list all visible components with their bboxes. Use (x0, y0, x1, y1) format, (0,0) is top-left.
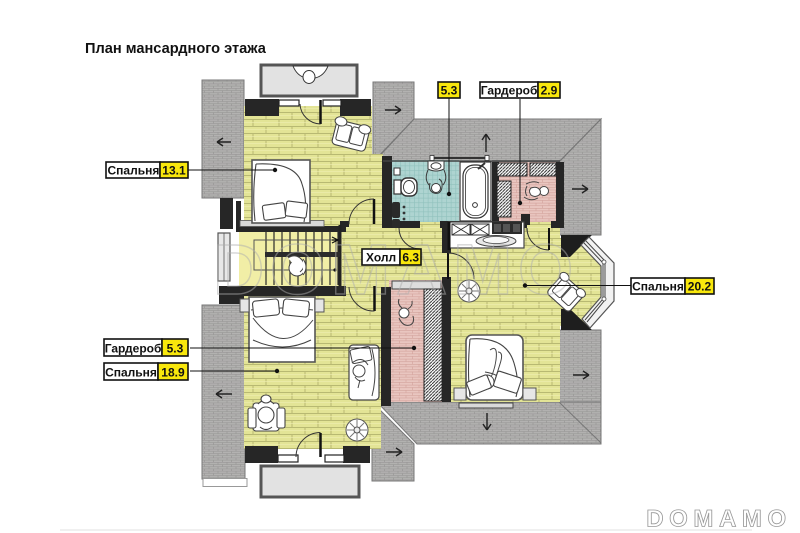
svg-text:Спальня: Спальня (105, 365, 157, 379)
svg-text:18.9: 18.9 (161, 365, 185, 379)
svg-text:5.3: 5.3 (167, 341, 184, 355)
svg-text:Холл: Холл (366, 251, 396, 265)
svg-text:Гардероб: Гардероб (481, 84, 538, 98)
svg-text:2.9: 2.9 (541, 84, 558, 98)
svg-text:Спальня: Спальня (632, 280, 684, 294)
svg-text:Спальня: Спальня (108, 164, 160, 178)
svg-text:Гардероб: Гардероб (105, 341, 162, 355)
svg-text:План мансардного этажа: План мансардного этажа (85, 41, 267, 57)
svg-text:20.2: 20.2 (688, 280, 712, 294)
svg-text:DOMAMO: DOMAMO (213, 231, 579, 310)
svg-text:6.3: 6.3 (402, 251, 419, 265)
svg-text:DOMAMO: DOMAMO (646, 506, 792, 533)
svg-text:13.1: 13.1 (162, 164, 186, 178)
svg-text:5.3: 5.3 (441, 84, 458, 98)
